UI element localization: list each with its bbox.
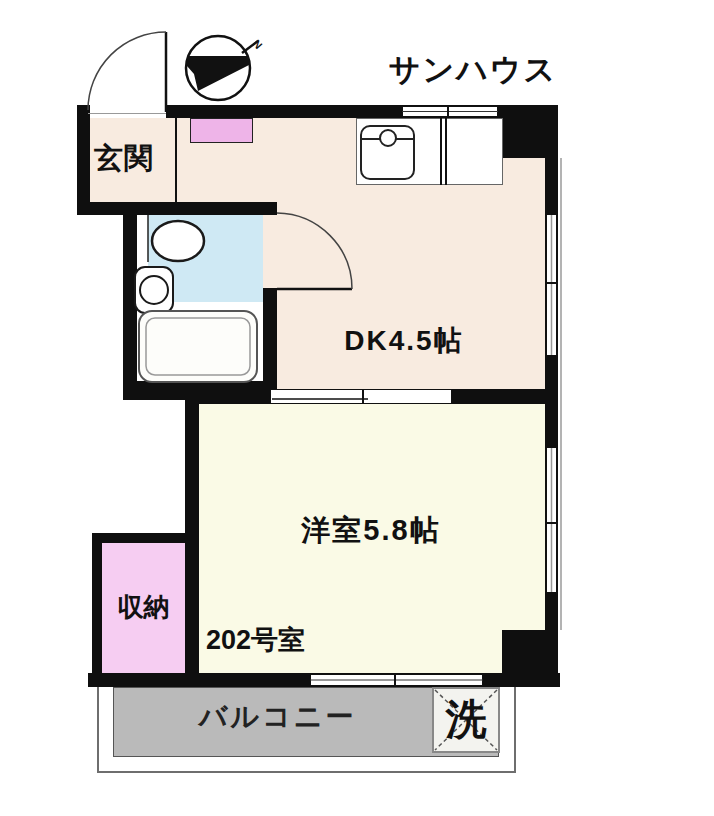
compass-north-tail (242, 41, 258, 53)
sliding-door-dk-western (270, 389, 452, 404)
wall-entrance-bottom (77, 202, 277, 215)
entrance-threshold-line (88, 113, 166, 114)
kitchen-window (402, 106, 498, 117)
wall-storage-right (185, 533, 199, 673)
wall-western-left (185, 389, 199, 533)
compass-north-label: N (251, 37, 265, 51)
western-right-window (545, 448, 558, 592)
storage-label: 収納 (102, 593, 185, 622)
entrance-door (88, 32, 166, 112)
compass-needle (187, 56, 249, 91)
wall-storage-top (92, 533, 199, 543)
wall-left (77, 105, 90, 215)
dining-kitchen-label: DK4.5帖 (298, 326, 510, 357)
washing-machine-label: 洗 (432, 697, 500, 742)
wall-divider-right (452, 389, 558, 404)
kitchen-counter-divider2 (445, 118, 447, 185)
compass-circle (186, 36, 250, 100)
entrance-dk-boundary-line (175, 118, 177, 202)
balcony-window (310, 674, 483, 686)
floor-plan: N (0, 0, 714, 816)
wall-corner-top-right (498, 105, 558, 158)
kitchen-counter-divider (440, 118, 442, 185)
building-title: サンハウス (383, 53, 563, 87)
shoe-cabinet (190, 118, 253, 143)
balcony-label: バルコニー (180, 702, 375, 733)
entrance-label: 玄関 (94, 143, 154, 175)
wall-bath-left (123, 202, 137, 400)
western-room-label: 洋室5.8帖 (258, 515, 484, 547)
bathroom-wet-area (148, 215, 263, 302)
dk-right-window (545, 215, 558, 355)
unit-number-label: 202号室 (206, 626, 305, 656)
kitchen-counter (356, 118, 503, 185)
wall-storage-left (92, 533, 102, 687)
entrance-door-swing-arc (88, 32, 166, 110)
compass-icon: N (186, 36, 265, 100)
right-outer-frame-line (560, 158, 562, 630)
